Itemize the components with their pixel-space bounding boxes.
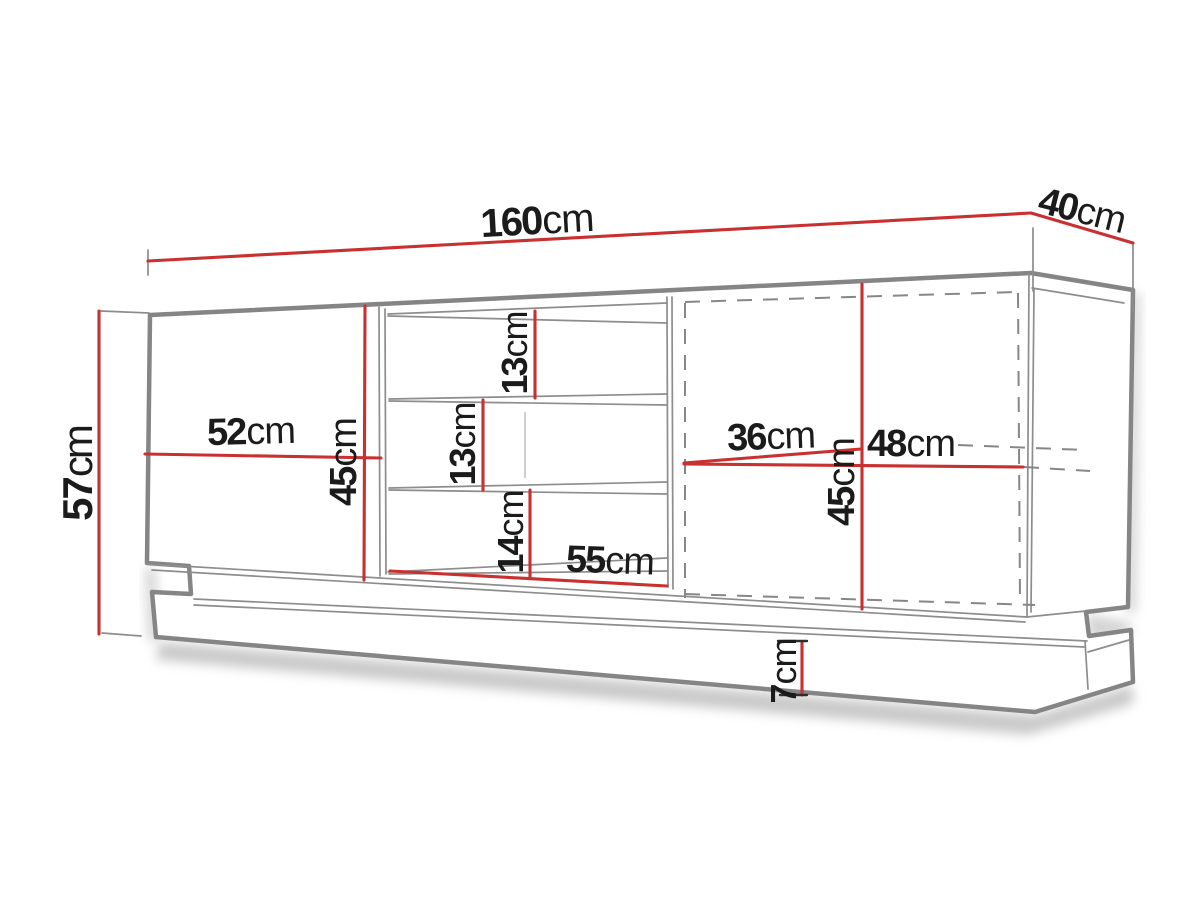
label-niche-middle-height: 13cm bbox=[445, 402, 481, 485]
label-niche-bottom-height: 14cm bbox=[493, 490, 529, 573]
label-left-door-width: 52cm bbox=[207, 412, 296, 452]
label-plinth-height: 7cm bbox=[766, 638, 802, 703]
cabinet-line-drawing bbox=[0, 0, 1200, 899]
label-total-width: 160cm bbox=[479, 198, 594, 244]
label-right-door-height: 45cm bbox=[823, 438, 861, 526]
label-right-inner-width: 36cm bbox=[726, 416, 815, 457]
label-niche-width: 55cm bbox=[565, 540, 654, 581]
label-right-door-width: 48cm bbox=[867, 425, 955, 463]
furniture-dimension-diagram: 160cm 40cm 57cm 52cm 45cm 13cm 13cm 14cm… bbox=[0, 0, 1200, 899]
label-total-height: 57cm bbox=[57, 427, 99, 521]
label-niche-top-height: 13cm bbox=[497, 311, 533, 394]
cabinet-outline bbox=[147, 273, 1133, 712]
label-left-door-height: 45cm bbox=[325, 418, 363, 506]
